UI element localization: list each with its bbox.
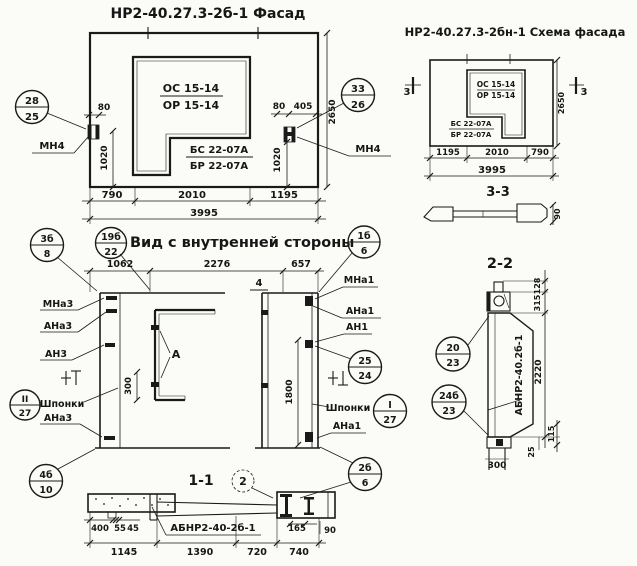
schema-section-mark-left: 3 xyxy=(404,77,421,98)
schema-drawing: НР2-40.27.3-2бн-1 Схема фасада ОС 15-14 … xyxy=(404,25,626,225)
svg-text:90: 90 xyxy=(324,526,336,536)
svg-text:3: 3 xyxy=(581,87,588,98)
svg-text:405: 405 xyxy=(294,102,313,112)
svg-text:2: 2 xyxy=(239,475,247,488)
svg-text:6: 6 xyxy=(361,246,368,257)
svg-text:25: 25 xyxy=(527,446,536,458)
svg-text:23: 23 xyxy=(442,406,455,417)
section-2-2-bottom: 300 xyxy=(485,437,511,471)
section-2-2-title: 2-2 xyxy=(487,256,513,272)
svg-text:790: 790 xyxy=(102,190,123,201)
section-2-2-top-anchor xyxy=(487,282,510,311)
callout-2b-6: 2б 6 xyxy=(300,447,382,498)
inner-view-dim-1800: 1800 xyxy=(285,337,301,448)
svg-text:720: 720 xyxy=(247,547,267,558)
facade-drawing: НР2-40.27.3-2б-1 Фасад ОС 15-14 ОР 15-14… xyxy=(16,6,392,224)
svg-text:2220: 2220 xyxy=(534,359,544,384)
svg-text:128: 128 xyxy=(533,277,542,294)
schema-dim-2650: 2650 xyxy=(554,57,566,149)
label-mna3: МНа3 xyxy=(43,299,73,310)
svg-text:МН4: МН4 xyxy=(39,141,64,152)
inner-view-drawing: Вид с внутренней стороны 1062 2276 657 xyxy=(10,226,407,498)
schema-panel-mark-bottom: БР 22-07А xyxy=(451,131,492,139)
section-2-2-dims: 128 315 2220 115 25 xyxy=(503,270,560,458)
svg-text:22: 22 xyxy=(104,247,117,258)
label-ana3-top: АНа3 xyxy=(44,321,72,332)
inner-view-detail-label: А xyxy=(172,348,181,361)
svg-text:80: 80 xyxy=(273,102,286,112)
svg-text:4б: 4б xyxy=(39,470,53,481)
callout-3b-8: 3б 8 xyxy=(31,229,98,292)
svg-text:1390: 1390 xyxy=(187,547,214,558)
section-1-1-drawing: 1-1 2 xyxy=(84,470,336,558)
svg-text:33: 33 xyxy=(351,84,365,95)
label-ana3-bottom: АНа3 xyxy=(44,413,72,424)
label-mna1: МНа1 xyxy=(344,275,374,286)
svg-text:300: 300 xyxy=(488,461,507,471)
svg-text:25: 25 xyxy=(25,112,39,123)
svg-text:МН4: МН4 xyxy=(355,144,380,155)
inner-view-title: Вид с внутренней стороны xyxy=(130,235,354,251)
section-2-2-drawing: 2-2 АБНР2-40.2б-1 300 xyxy=(432,256,560,471)
svg-text:115: 115 xyxy=(547,425,556,442)
schema-panel-mark-top: БС 22-07А xyxy=(451,120,492,128)
svg-text:24: 24 xyxy=(358,371,372,382)
schema-window-mark-bottom: ОР 15-14 xyxy=(477,91,515,100)
svg-text:27: 27 xyxy=(19,409,32,419)
svg-text:300: 300 xyxy=(124,377,134,395)
label-an1: АН1 xyxy=(346,322,368,333)
label-shponki-left: Шпонки xyxy=(40,399,85,410)
svg-text:55: 55 xyxy=(114,524,126,534)
section-3-3-profile: 90 xyxy=(424,202,562,225)
svg-text:27: 27 xyxy=(383,415,396,426)
svg-text:20: 20 xyxy=(446,343,460,354)
svg-text:19б: 19б xyxy=(101,232,121,243)
facade-bottom-dims: 790 2010 1195 3995 xyxy=(82,187,326,224)
svg-text:2010: 2010 xyxy=(485,148,509,158)
label-ana1-bottom: АНа1 xyxy=(333,421,361,432)
shear-key-symbol-right xyxy=(328,371,348,385)
svg-text:2650: 2650 xyxy=(328,99,338,124)
callout-25-24: 25 24 xyxy=(315,346,382,384)
svg-text:1б: 1б xyxy=(357,231,371,242)
inner-view-top-dims: 1062 2276 657 xyxy=(84,259,324,292)
svg-text:1020: 1020 xyxy=(273,147,283,172)
svg-text:24б: 24б xyxy=(439,391,459,402)
svg-text:1195: 1195 xyxy=(436,148,460,158)
schema-title: НР2-40.27.3-2бн-1 Схема фасада xyxy=(405,25,626,39)
callout-II-27: II 27 xyxy=(10,390,40,420)
svg-text:3б: 3б xyxy=(40,234,54,245)
svg-text:3995: 3995 xyxy=(478,165,506,176)
svg-text:2б: 2б xyxy=(358,463,372,474)
label-ana1-top: АНа1 xyxy=(346,306,374,317)
schema-section-mark-right: 3 xyxy=(569,77,588,98)
svg-text:1020: 1020 xyxy=(100,145,110,170)
section-2-2-part-label: АБНР2-40.2б-1 xyxy=(514,335,525,416)
svg-text:28: 28 xyxy=(25,96,39,107)
svg-text:400: 400 xyxy=(91,524,109,534)
callout-4b-10: 4б 10 xyxy=(30,449,96,498)
section-1-1-title: 1-1 xyxy=(188,473,213,489)
facade-window-mark-top: ОС 15-14 xyxy=(163,82,220,95)
svg-text:6: 6 xyxy=(362,478,369,489)
schema-section-label: 3-3 xyxy=(486,185,510,200)
facade-dim-1020-right: 1020 xyxy=(273,139,290,190)
inner-view-section-mark-4: 4 xyxy=(250,278,268,290)
drawing-sheet: НР2-40.27.3-2б-1 Фасад ОС 15-14 ОР 15-14… xyxy=(0,0,637,566)
svg-text:4: 4 xyxy=(256,278,263,289)
facade-dim-1020-left: 1020 xyxy=(100,128,116,190)
svg-text:I: I xyxy=(388,400,392,411)
schema-profile-dim: 90 xyxy=(553,208,562,220)
svg-text:740: 740 xyxy=(289,547,309,558)
svg-text:8: 8 xyxy=(44,249,51,260)
inner-view-left-piece xyxy=(95,293,230,448)
shear-key-symbol-left xyxy=(61,371,81,385)
facade-dim-80-405-right: 80 405 xyxy=(271,102,322,117)
facade-panel-mark-top: БС 22-07А xyxy=(190,145,248,156)
facade-callout-left: 28 25 xyxy=(16,91,87,130)
schema-window-mark-top: ОС 15-14 xyxy=(477,80,515,89)
svg-text:АБНР2-40-2б-1: АБНР2-40-2б-1 xyxy=(170,522,255,534)
facade-window-mark-bottom: ОР 15-14 xyxy=(163,99,220,112)
inner-view-dim-300: 300 xyxy=(124,369,140,403)
label-an3: АН3 xyxy=(45,349,67,360)
section-2-2-body: АБНР2-40.2б-1 xyxy=(488,313,533,437)
svg-text:1800: 1800 xyxy=(285,379,295,404)
svg-text:80: 80 xyxy=(98,103,111,113)
svg-text:657: 657 xyxy=(291,259,311,270)
inner-view-right-piece: 4 1800 xyxy=(250,278,320,448)
callout-24b-23: 24б 23 xyxy=(432,385,488,435)
svg-text:3: 3 xyxy=(404,87,411,98)
svg-text:2276: 2276 xyxy=(204,259,231,270)
facade-panel-mark-bottom: БР 22-07А xyxy=(190,161,248,172)
svg-text:26: 26 xyxy=(351,100,365,111)
svg-text:45: 45 xyxy=(127,524,139,534)
svg-text:3995: 3995 xyxy=(190,208,218,219)
svg-text:2010: 2010 xyxy=(178,190,206,201)
facade-anchor-right-label: МН4 xyxy=(297,137,391,156)
svg-text:2650: 2650 xyxy=(557,91,566,114)
inner-view-frame-detail: А 300 xyxy=(124,310,215,403)
svg-text:10: 10 xyxy=(39,485,53,496)
svg-text:1145: 1145 xyxy=(111,547,137,558)
inner-view-right-labels: МНа1 АНа1 АН1 25 24 Шпонки I xyxy=(300,275,407,498)
schema-bottom-dims: 1195 2010 790 3995 xyxy=(424,146,559,181)
facade-anchor-left xyxy=(88,125,99,139)
svg-text:25: 25 xyxy=(358,356,371,367)
detail-mark-2: 2 xyxy=(232,470,273,498)
svg-text:II: II xyxy=(22,395,29,405)
facade-title: НР2-40.27.3-2б-1 Фасад xyxy=(110,6,305,22)
inner-view-left-labels: МНа3 АНа3 АН3 II 27 Шпонки АНа3 xyxy=(10,298,118,498)
facade-dim-80-left: 80 xyxy=(84,103,110,118)
callout-I-27: I 27 xyxy=(374,395,407,428)
svg-text:23: 23 xyxy=(446,358,459,369)
facade-anchor-left-label: МН4 xyxy=(32,137,88,153)
svg-text:790: 790 xyxy=(531,148,549,158)
svg-text:1195: 1195 xyxy=(270,190,298,201)
svg-text:315: 315 xyxy=(533,294,542,311)
label-shponki-right: Шпонки xyxy=(326,403,371,414)
callout-20-23: 20 23 xyxy=(436,316,489,371)
